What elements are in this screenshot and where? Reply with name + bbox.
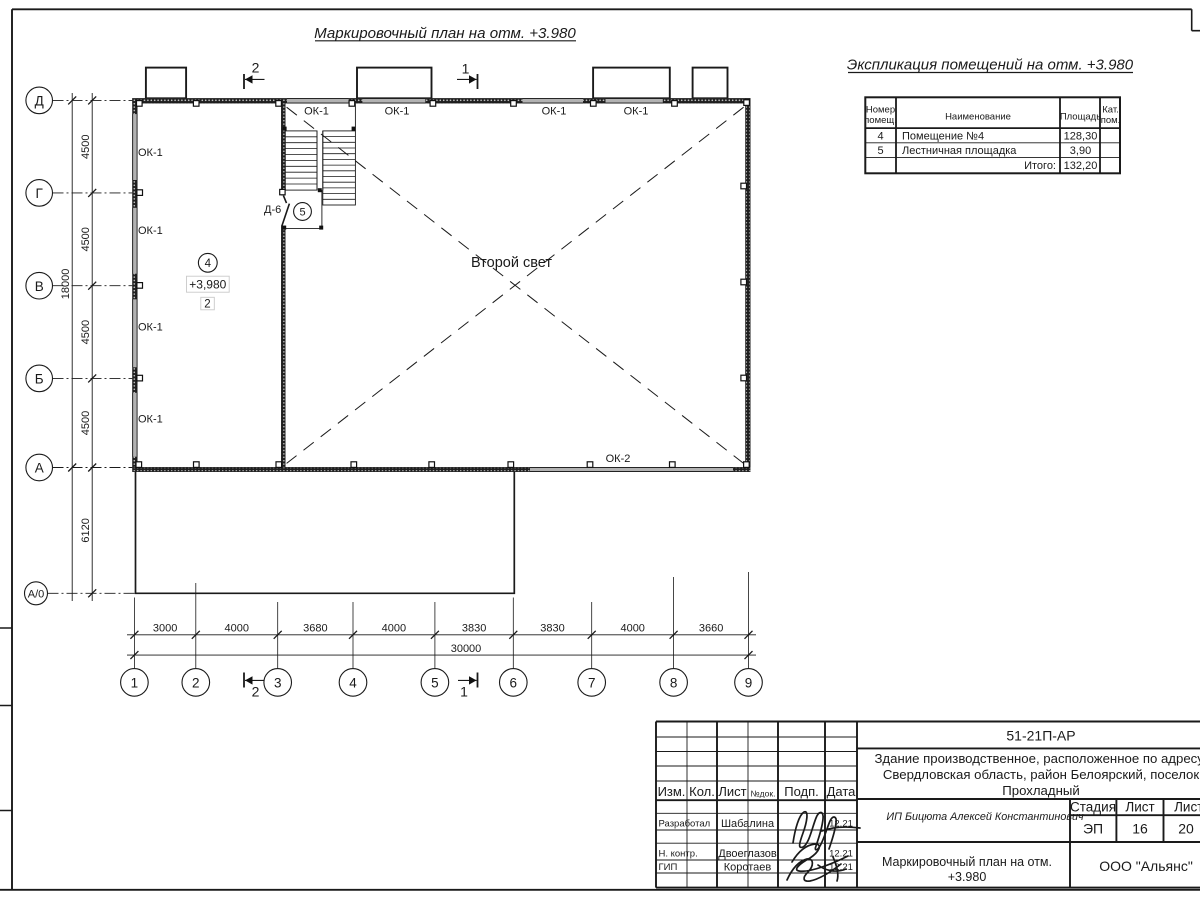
svg-text:ГИП: ГИП [659,862,678,873]
svg-text:Д: Д [35,94,44,109]
svg-text:Коротаев: Коротаев [724,861,772,873]
svg-text:2: 2 [192,675,200,690]
svg-text:3680: 3680 [303,623,327,635]
svg-text:3,90: 3,90 [1070,145,1091,157]
svg-text:Подп.: Подп. [784,784,819,799]
svg-text:Наименование: Наименование [945,112,1011,123]
svg-text:4: 4 [349,675,357,690]
svg-text:5: 5 [299,207,305,219]
svg-text:3: 3 [274,675,282,690]
svg-text:9: 9 [745,675,753,690]
svg-text:128,30: 128,30 [1064,131,1098,143]
svg-text:20: 20 [1178,821,1194,837]
svg-text:Г: Г [36,186,44,201]
svg-text:Номер: Номер [866,105,895,116]
svg-text:8: 8 [670,675,678,690]
svg-text:3660: 3660 [699,623,723,635]
svg-text:Стадия: Стадия [1070,800,1116,815]
svg-text:Кат.: Кат. [1102,105,1119,116]
svg-text:4: 4 [205,258,212,270]
svg-text:Здание производственное, распо: Здание производственное, расположенное п… [874,751,1200,766]
svg-text:ОК-1: ОК-1 [542,105,567,117]
svg-text:ОК-2: ОК-2 [606,453,631,465]
svg-text:+3,980: +3,980 [189,278,226,292]
svg-text:4500: 4500 [80,134,92,158]
svg-text:Листов: Листов [1174,800,1200,815]
svg-text:Н. контр.: Н. контр. [659,849,698,860]
svg-text:В: В [35,279,44,294]
svg-text:ИП Бицюта Алексей Константинов: ИП Бицюта Алексей Константинович [886,811,1084,823]
svg-text:Лестничная площадка: Лестничная площадка [902,145,1017,157]
svg-text:Лист: Лист [718,784,746,799]
svg-text:4500: 4500 [80,227,92,251]
svg-text:51-21П-АР: 51-21П-АР [1006,728,1075,744]
svg-text:А/0: А/0 [28,588,45,600]
svg-text:30000: 30000 [451,643,482,655]
svg-text:ОК-1: ОК-1 [138,322,163,334]
svg-text:ЭП: ЭП [1083,821,1103,837]
svg-text:Свердловская область, район Бе: Свердловская область, район Белоярский, … [883,767,1200,782]
svg-text:Лист: Лист [1125,800,1154,815]
svg-text:Маркировочный план на отм.: Маркировочный план на отм. [882,855,1052,869]
svg-text:6120: 6120 [80,518,92,542]
svg-text:ООО "Альянс": ООО "Альянс" [1099,858,1193,874]
svg-text:Шабалина: Шабалина [721,818,775,830]
svg-text:16: 16 [1132,821,1148,837]
svg-text:помещ.: помещ. [864,115,897,126]
svg-text:2: 2 [252,684,260,700]
svg-text:Разработал: Разработал [659,819,711,830]
svg-text:132,20: 132,20 [1064,160,1098,172]
svg-text:2: 2 [252,59,260,75]
svg-text:Итого:: Итого: [1024,160,1056,172]
svg-text:Помещение №4: Помещение №4 [902,131,984,143]
svg-text:3000: 3000 [153,623,177,635]
svg-text:Дата: Дата [827,784,857,799]
svg-text:ОК-1: ОК-1 [138,147,163,159]
svg-text:4: 4 [877,131,883,143]
svg-text:4500: 4500 [80,320,92,344]
svg-text:5: 5 [431,675,439,690]
svg-text:1: 1 [462,61,470,77]
svg-text:18000: 18000 [60,269,72,300]
svg-text:Прохладный: Прохладный [1002,783,1079,798]
svg-text:4500: 4500 [80,411,92,435]
svg-text:Второй свет: Второй свет [471,255,552,271]
svg-text:№док.: №док. [751,789,776,799]
svg-text:Площадь: Площадь [1060,112,1101,123]
svg-text:4000: 4000 [225,623,249,635]
svg-text:А: А [35,461,44,476]
svg-text:1: 1 [131,675,139,690]
svg-text:1: 1 [460,684,468,700]
svg-text:Кол.: Кол. [689,784,715,799]
svg-text:6: 6 [510,675,518,690]
svg-text:Д-6: Д-6 [264,204,281,216]
svg-text:Изм.: Изм. [658,784,686,799]
svg-text:+3.980: +3.980 [948,870,987,884]
svg-text:4000: 4000 [620,623,644,635]
svg-text:Двоеглазов: Двоеглазов [718,848,777,860]
svg-text:3830: 3830 [462,623,486,635]
svg-text:4000: 4000 [382,623,406,635]
svg-text:ОК-1: ОК-1 [304,105,329,117]
svg-text:5: 5 [877,145,883,157]
svg-text:ОК-1: ОК-1 [138,225,163,237]
svg-text:7: 7 [588,675,596,690]
svg-text:ОК-1: ОК-1 [624,105,649,117]
svg-text:ОК-1: ОК-1 [385,105,410,117]
svg-text:Б: Б [35,372,44,387]
svg-text:Маркировочный план на отм. +3.: Маркировочный план на отм. +3.980 [314,25,576,42]
svg-text:Экспликация помещений на отм.: Экспликация помещений на отм. +3.980 [847,57,1134,74]
svg-text:ОК-1: ОК-1 [138,414,163,426]
svg-text:пом.: пом. [1101,115,1121,126]
svg-text:2: 2 [204,299,210,311]
svg-text:3830: 3830 [540,623,564,635]
